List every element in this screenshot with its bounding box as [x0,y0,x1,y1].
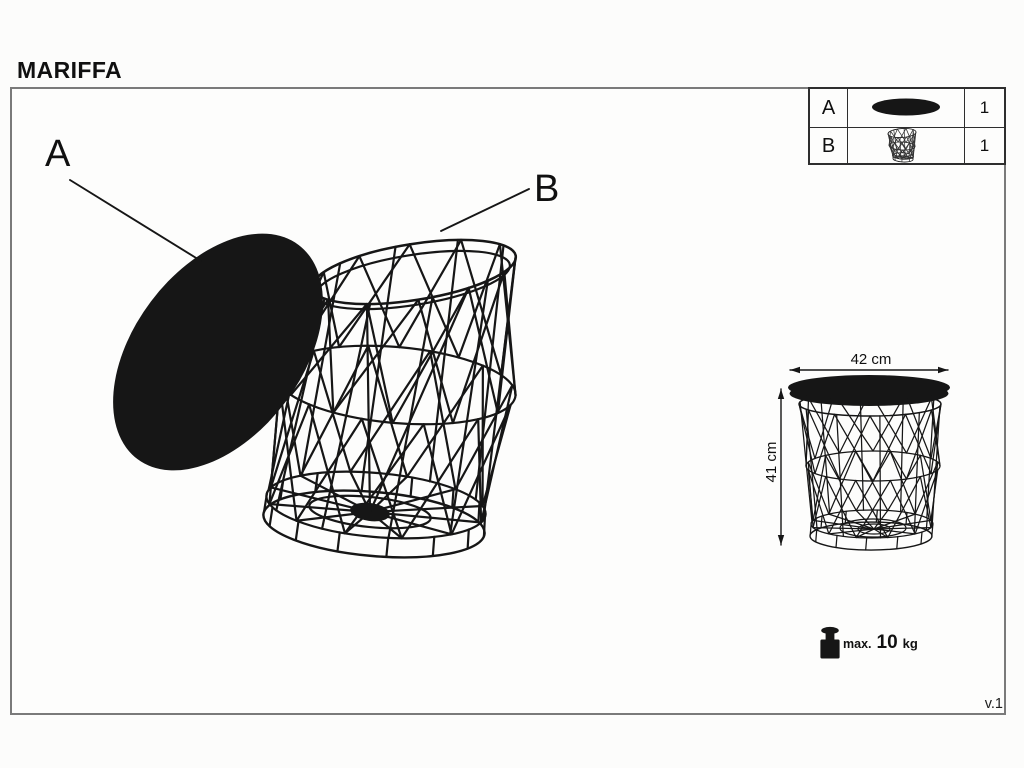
width-dimension-label: 42 cm [821,351,921,368]
version-label: v.1 [950,696,1003,712]
product-title: MARIFFA [17,58,122,82]
parts-table-row: B 1 [810,127,1004,165]
max-load-prefix: max. [843,637,872,651]
wire-basket-icon [848,128,964,165]
max-load-value: 10 [877,632,898,654]
max-load-unit: kg [903,636,918,651]
table-lid-icon [848,89,964,127]
height-dimension-label: 41 cm [763,432,781,492]
part-letter-a: A [810,89,848,127]
max-load-label: max. 10 kg [843,632,918,654]
sheet-frame [10,87,1006,715]
part-qty-b: 1 [964,128,1004,165]
instruction-sheet: MARIFFA A 1 B 1 A B 42 cm 41 cm max. 10 … [0,0,1024,768]
part-letter-b: B [810,128,848,165]
part-callout-a: A [45,134,70,174]
part-callout-b: B [534,169,559,209]
parts-table: A 1 B 1 [808,87,1006,165]
part-qty-a: 1 [964,89,1004,127]
parts-table-row: A 1 [810,89,1004,127]
